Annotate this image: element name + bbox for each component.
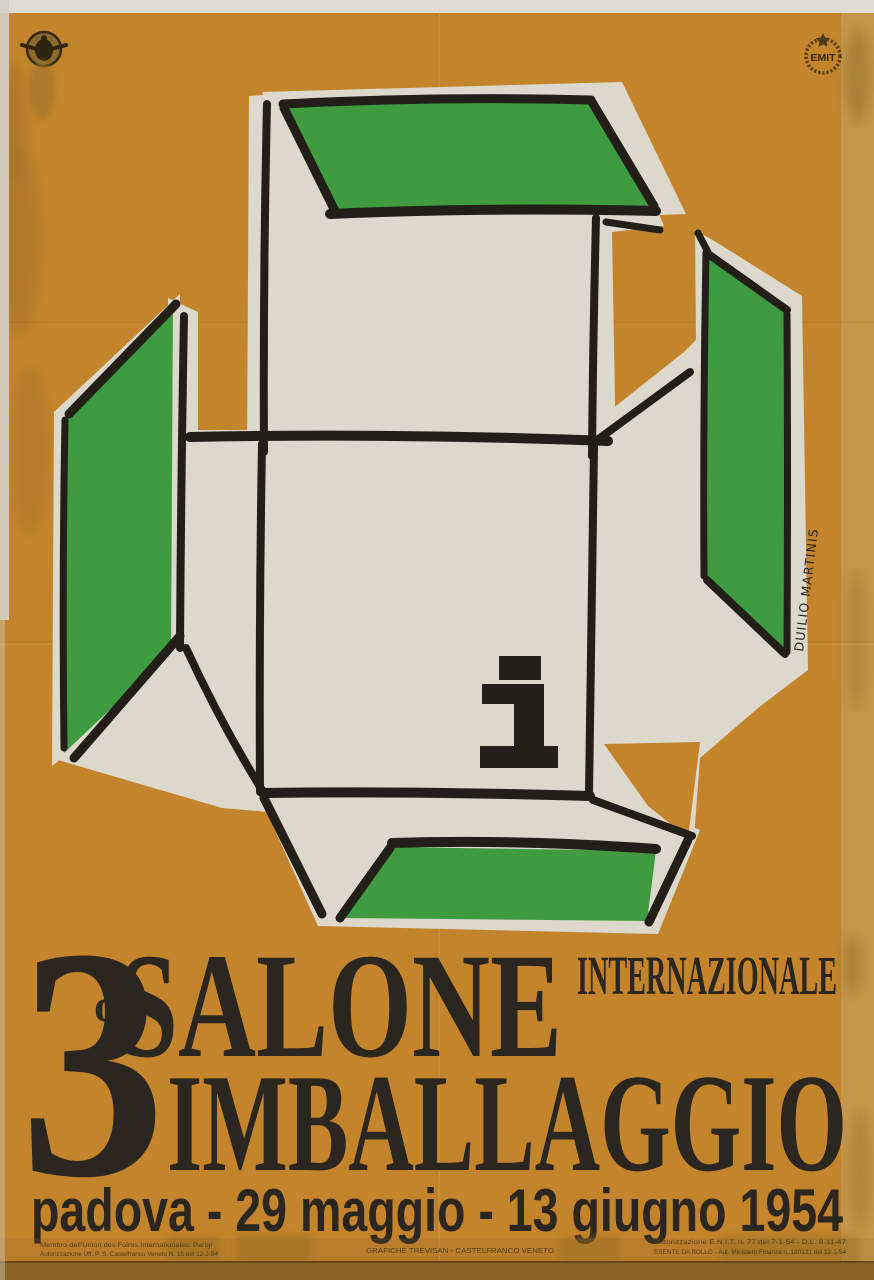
fine-print-right-2: ESENTE DA BOLLO - Aut. Ministero Finanze…: [654, 1249, 847, 1256]
title-internazionale: INTERNAZIONALE: [577, 945, 837, 1006]
fine-print-left-1: Membro dell'Union des Foires Internation…: [40, 1242, 212, 1249]
date-line: padova - 29 maggio - 13 giugno 1954: [31, 1177, 843, 1244]
bottom-edge-strip: [0, 1263, 874, 1280]
title-ordinal: o: [94, 980, 117, 1031]
white-center-panel: [252, 430, 606, 800]
fine-print-right-1: Autorizzazione E.N.I.T. n. 77 del 7-1-54…: [654, 1239, 847, 1246]
poster: DUILIO MARTINIS EMIT 3 o SALONE INTERNAZ…: [0, 0, 874, 1280]
emit-badge-label: EMIT: [810, 52, 836, 64]
fine-print-left-2: Autorizzazione Uff. P. S. Castelfranco V…: [40, 1251, 218, 1258]
poster-artwork: DUILIO MARTINIS EMIT 3 o SALONE INTERNAZ…: [0, 0, 874, 1280]
fine-print-center: GRAFICHE TREVISAN - CASTELFRANCO VENETO: [366, 1246, 554, 1255]
